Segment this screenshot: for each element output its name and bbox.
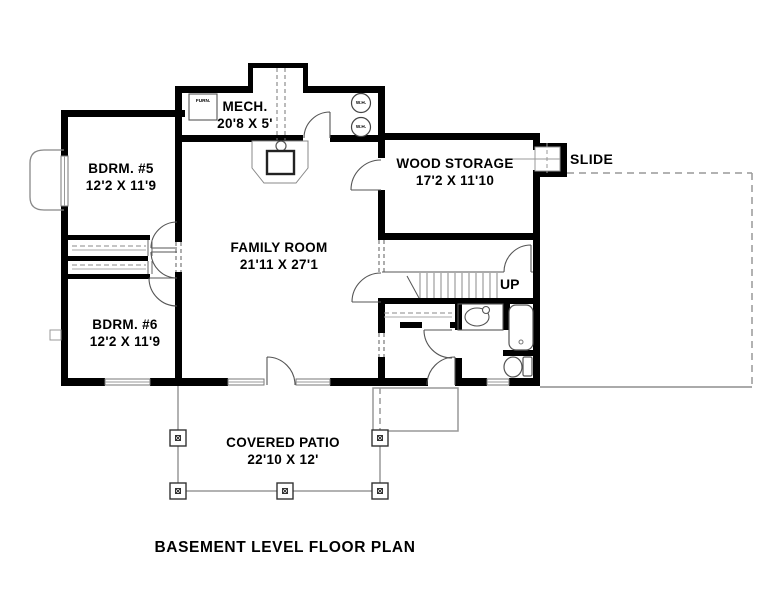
patio-door: [267, 357, 295, 385]
upper-level-dashed-outline: [567, 173, 752, 386]
back-stoop-outline: [373, 388, 458, 431]
room-dims: 21'11 X 27'1: [199, 256, 359, 273]
up-label: UP: [500, 276, 519, 292]
stair-landing-door: [504, 245, 531, 272]
bdrm5-door: [151, 222, 177, 248]
room-dims: 17'2 X 11'10: [375, 172, 535, 189]
hall-closet: [384, 313, 452, 317]
stair-direction-arrow: [407, 276, 419, 298]
water-heater-label-2: W.H.: [354, 125, 368, 130]
room-label-bdrm6: BDRM. #6 12'2 X 11'9: [65, 316, 185, 350]
room-dims: 22'10 X 12': [203, 451, 363, 468]
slide-label: SLIDE: [570, 151, 613, 167]
sink-vanity: [458, 304, 503, 330]
water-heater-label-1: W.H.: [354, 101, 368, 106]
bathroom-door: [424, 330, 452, 358]
closet-vestibule-door: [151, 252, 177, 278]
room-name: FAMILY ROOM: [199, 239, 359, 256]
room-label-covered-patio: COVERED PATIO 22'10 X 12': [203, 434, 363, 468]
basement-floor-plan: MECH. 20'8 X 5' BDRM. #5 12'2 X 11'9 WOO…: [0, 0, 760, 608]
stove-flue: [276, 141, 286, 151]
bdrm6-door: [149, 278, 177, 306]
mech-door: [304, 112, 330, 138]
room-name: BDRM. #5: [61, 160, 181, 177]
toilet: [504, 357, 532, 377]
room-name: WOOD STORAGE: [375, 155, 535, 172]
room-dims: 12'2 X 11'9: [61, 177, 181, 194]
room-label-family-room: FAMILY ROOM 21'11 X 27'1: [199, 239, 359, 273]
under-stairs-door: [352, 273, 381, 302]
furnace-label: FURN.: [194, 99, 213, 104]
room-label-bdrm5: BDRM. #5 12'2 X 11'9: [61, 160, 181, 194]
room-name: COVERED PATIO: [203, 434, 363, 451]
room-dims: 12'2 X 11'9: [65, 333, 185, 350]
bathtub: [509, 305, 533, 350]
back-door: [427, 357, 455, 385]
room-dims: 20'8 X 5': [190, 115, 300, 132]
stove-body: [267, 151, 294, 174]
bdrm6-wall-vent: [50, 330, 61, 340]
drawing-title: BASEMENT LEVEL FLOOR PLAN: [85, 539, 485, 557]
room-label-wood-storage: WOOD STORAGE 17'2 X 11'10: [375, 155, 535, 189]
room-name: BDRM. #6: [65, 316, 185, 333]
floor-plan-drawing: [0, 0, 760, 608]
bdrm5-window-well: [30, 150, 64, 210]
